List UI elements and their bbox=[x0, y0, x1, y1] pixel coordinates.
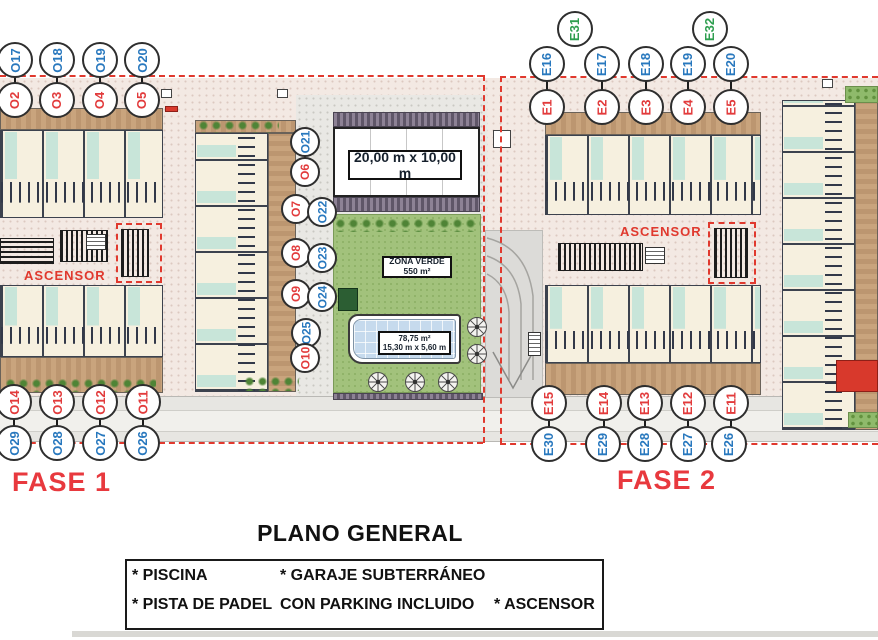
pool-dimensions-text: 15,30 m x 5,60 m bbox=[383, 343, 446, 352]
umbrella-icon bbox=[466, 316, 488, 338]
fase1-left-units-bottom bbox=[0, 285, 163, 357]
bottom-divider-bar bbox=[72, 631, 878, 637]
unit-marker-O21: O21 bbox=[290, 127, 320, 157]
unit-marker-E15: E15 bbox=[531, 385, 567, 421]
unit-marker-O29: O29 bbox=[0, 425, 32, 461]
unit-marker-E26: E26 bbox=[711, 426, 747, 462]
unit-marker-O8: O8 bbox=[281, 238, 311, 268]
fase1-mid-trees-top bbox=[197, 120, 279, 133]
fase2-elevator-outline bbox=[708, 222, 756, 284]
zona-verde-label: ZONA VERDE 550 m² bbox=[382, 256, 452, 278]
fase1-title: FASE 1 bbox=[12, 467, 111, 498]
unit-marker-E18: E18 bbox=[628, 46, 664, 82]
unit-marker-E28: E28 bbox=[627, 426, 663, 462]
fase1-stairs bbox=[86, 234, 106, 250]
unit-marker-O11: O11 bbox=[125, 384, 161, 420]
pool-label: 78,75 m² 15,30 m x 5,60 m bbox=[378, 331, 451, 355]
garage-ramp-lines bbox=[485, 230, 543, 398]
unit-marker-E16: E16 bbox=[529, 46, 565, 82]
fase1-boundary-right bbox=[483, 75, 485, 443]
unit-marker-E3: E3 bbox=[628, 89, 664, 125]
fase1-mid-bushes-bottom bbox=[243, 376, 299, 391]
zona-verde-edge bbox=[333, 393, 483, 400]
unit-marker-O20: O20 bbox=[124, 42, 160, 78]
unit-marker-O5: O5 bbox=[124, 82, 160, 118]
utility-box bbox=[822, 79, 833, 88]
unit-marker-O28: O28 bbox=[39, 425, 75, 461]
site-plan: ASCENSOR 20,00 m x 10,00 m ZONA VERDE 55… bbox=[0, 0, 878, 640]
padel-wall-bottom bbox=[333, 197, 480, 212]
legend-garaje-line1: * GARAJE SUBTERRÁNEO bbox=[280, 567, 485, 585]
fase2-units-top bbox=[545, 135, 761, 215]
picnic-table-icon bbox=[338, 288, 358, 311]
unit-marker-O3: O3 bbox=[39, 82, 75, 118]
umbrella-icon bbox=[367, 371, 389, 393]
unit-marker-O4: O4 bbox=[82, 82, 118, 118]
unit-marker-O27: O27 bbox=[82, 425, 118, 461]
umbrella-icon bbox=[404, 371, 426, 393]
unit-marker-O26: O26 bbox=[124, 425, 160, 461]
fase1-boundary-top bbox=[0, 75, 483, 77]
legend-piscina: * PISCINA bbox=[132, 567, 208, 585]
unit-marker-E17: E17 bbox=[584, 46, 620, 82]
umbrella-icon bbox=[437, 371, 459, 393]
unit-marker-E2: E2 bbox=[584, 89, 620, 125]
unit-marker-O18: O18 bbox=[39, 42, 75, 78]
unit-marker-E14: E14 bbox=[586, 385, 622, 421]
fase2-boundary-left bbox=[500, 76, 502, 444]
unit-marker-E5: E5 bbox=[713, 89, 749, 125]
zona-verde-trees bbox=[334, 218, 480, 232]
padel-wall-top bbox=[333, 112, 480, 127]
unit-marker-E13: E13 bbox=[627, 385, 663, 421]
fase2-parking-rows bbox=[558, 243, 643, 271]
unit-marker-O24: O24 bbox=[307, 282, 337, 312]
green-patch-bottom bbox=[848, 412, 878, 428]
unit-marker-E11: E11 bbox=[713, 385, 749, 421]
padel-dimensions-text: 20,00 m x 10,00 m bbox=[350, 149, 460, 181]
unit-marker-O19: O19 bbox=[82, 42, 118, 78]
fase2-ascensor-label: ASCENSOR bbox=[620, 224, 702, 239]
unit-marker-E29: E29 bbox=[585, 426, 621, 462]
ramp-stairs bbox=[528, 332, 541, 356]
unit-marker-O22: O22 bbox=[307, 197, 337, 227]
unit-marker-E1: E1 bbox=[529, 89, 565, 125]
unit-marker-E31: E31 bbox=[557, 11, 593, 47]
unit-marker-E30: E30 bbox=[531, 426, 567, 462]
fase1-mid-units bbox=[195, 133, 268, 392]
fase1-ascensor-label: ASCENSOR bbox=[24, 268, 106, 283]
unit-marker-O10: O10 bbox=[290, 343, 320, 373]
utility-box bbox=[277, 89, 288, 98]
unit-marker-O23: O23 bbox=[307, 243, 337, 273]
fase1-parking-ramp bbox=[0, 238, 54, 264]
unit-marker-O12: O12 bbox=[82, 384, 118, 420]
green-patch-top bbox=[845, 86, 878, 103]
umbrella-icon bbox=[466, 343, 488, 365]
unit-marker-E12: E12 bbox=[670, 385, 706, 421]
unit-marker-E4: E4 bbox=[670, 89, 706, 125]
legend-ascensor: * ASCENSOR bbox=[494, 596, 595, 614]
unit-marker-E32: E32 bbox=[692, 11, 728, 47]
fase2-title: FASE 2 bbox=[617, 465, 716, 496]
unit-marker-O6: O6 bbox=[290, 157, 320, 187]
utility-box bbox=[493, 130, 511, 148]
unit-marker-O17: O17 bbox=[0, 42, 33, 78]
pool-area-text: 78,75 m² bbox=[398, 334, 430, 343]
fase2-stairs bbox=[645, 247, 665, 264]
unit-marker-E20: E20 bbox=[713, 46, 749, 82]
transformer-block bbox=[836, 360, 878, 392]
fase2-units-bottom bbox=[545, 285, 761, 363]
zona-verde-area: 550 m² bbox=[404, 267, 431, 277]
fase1-left-units-top bbox=[0, 130, 163, 218]
unit-marker-E19: E19 bbox=[670, 46, 706, 82]
legend-garaje-line2: CON PARKING INCLUIDO bbox=[280, 596, 474, 614]
legend-pista-padel: * PISTA DE PADEL bbox=[132, 596, 272, 614]
utility-box bbox=[161, 89, 172, 98]
red-marker bbox=[165, 106, 178, 112]
unit-marker-E27: E27 bbox=[670, 426, 706, 462]
unit-marker-O13: O13 bbox=[39, 384, 75, 420]
padel-dimensions-label: 20,00 m x 10,00 m bbox=[348, 150, 462, 180]
fase1-elevator-outline bbox=[116, 223, 162, 283]
plan-title: PLANO GENERAL bbox=[250, 520, 470, 547]
